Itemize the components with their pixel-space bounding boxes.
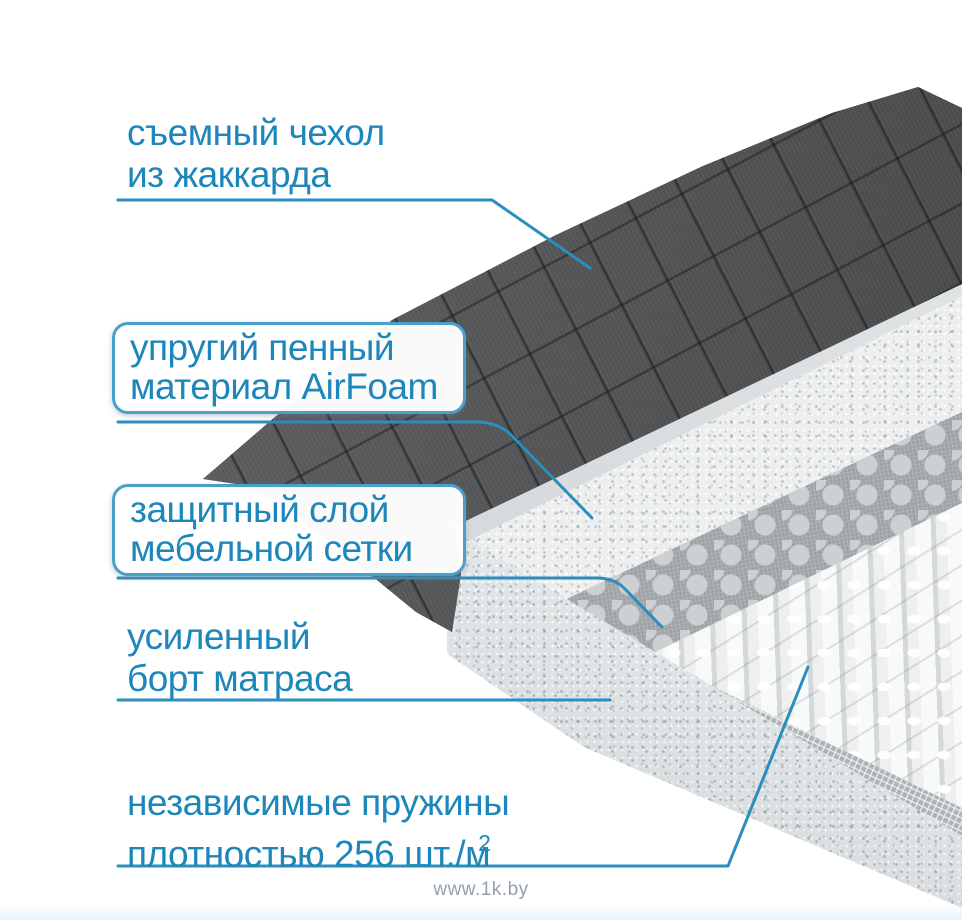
watermark: www.1k.by (0, 879, 962, 901)
label-foam-line1: упругий пенный (130, 328, 448, 367)
mattress-layers-diagram: съемный чехол из жаккарда упругий пенный… (0, 0, 962, 920)
label-mesh-line2: мебельной сетки (130, 529, 448, 568)
label-springs-line1: независимые пружины (127, 782, 509, 824)
label-border-line2: борт матраса (127, 658, 352, 700)
label-mesh-line1: защитный слой (130, 490, 448, 529)
label-cover-line2: из жаккарда (127, 154, 385, 196)
label-cover-line1: съемный чехол (127, 112, 385, 154)
label-border-line1: усиленный (127, 616, 352, 658)
label-cover: съемный чехол из жаккарда (127, 112, 385, 196)
label-foam: упругий пенный материал AirFoam (112, 322, 466, 414)
label-springs-line2-text: плотностью 256 шт./м (127, 833, 490, 874)
bottom-tint (0, 904, 962, 920)
label-springs-line2: плотностью 256 шт./м2 (127, 824, 509, 875)
label-mesh: защитный слой мебельной сетки (112, 484, 466, 576)
label-springs-superscript: 2 (478, 830, 490, 856)
label-springs: независимые пружины плотностью 256 шт./м… (127, 782, 509, 875)
label-border: усиленный борт матраса (127, 616, 352, 700)
label-foam-line2: материал AirFoam (130, 367, 448, 406)
